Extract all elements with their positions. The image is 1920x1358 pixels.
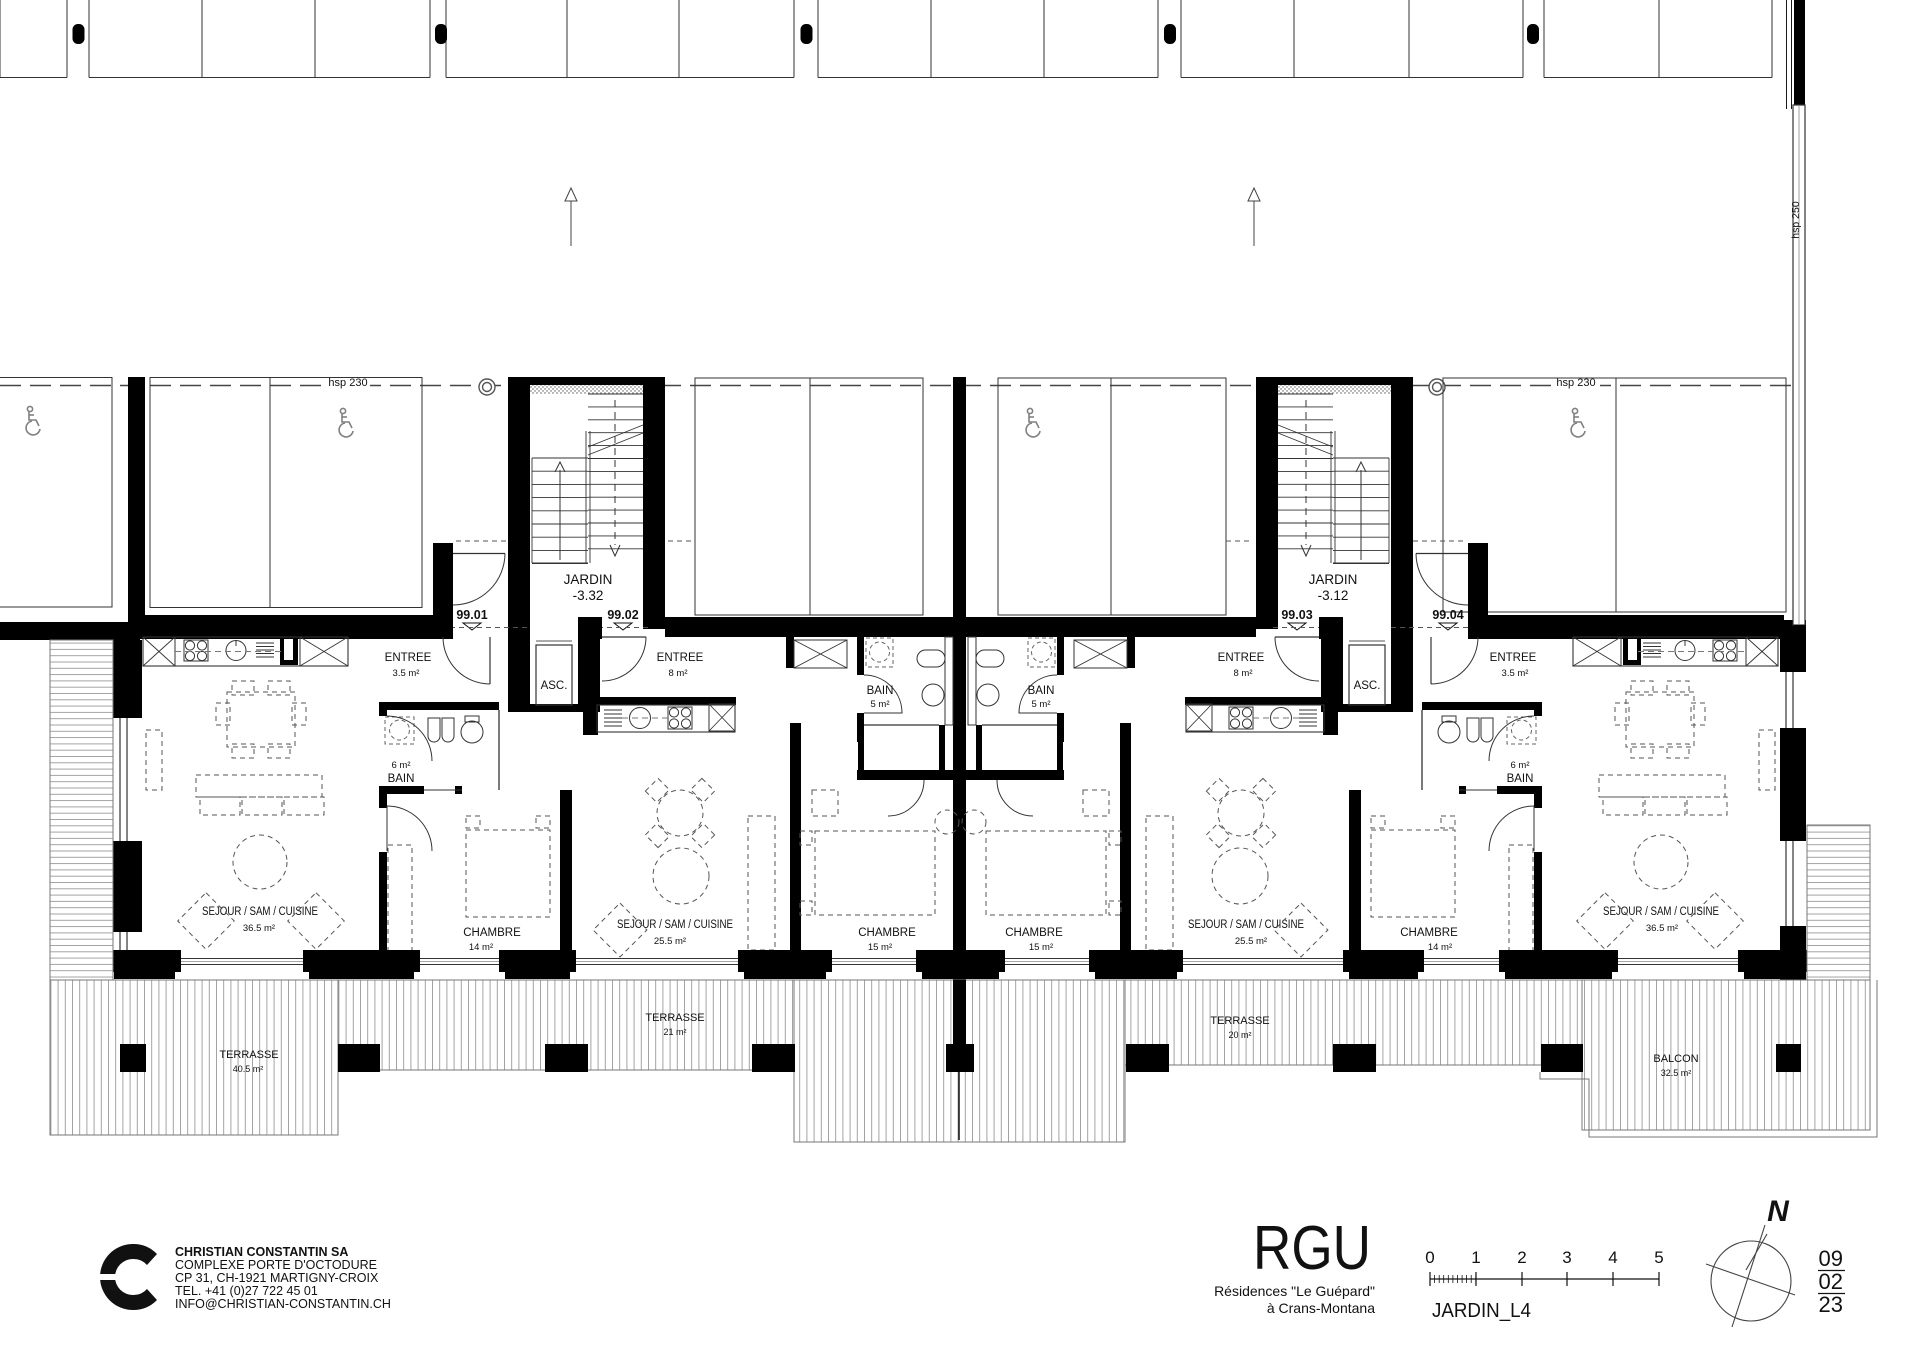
svg-text:JARDIN_L4: JARDIN_L4 <box>1432 1299 1531 1322</box>
svg-text:5 m²: 5 m² <box>1032 699 1051 710</box>
svg-text:15 m²: 15 m² <box>868 942 892 953</box>
svg-text:hsp 250: hsp 250 <box>1790 201 1802 239</box>
svg-text:6 m²: 6 m² <box>1511 760 1530 771</box>
svg-text:BAIN: BAIN <box>388 773 415 785</box>
svg-text:ASC.: ASC. <box>541 680 568 692</box>
svg-text:RGU: RGU <box>1253 1214 1371 1283</box>
svg-text:99.04: 99.04 <box>1432 608 1463 622</box>
svg-text:5 m²: 5 m² <box>871 699 890 710</box>
svg-text:BAIN: BAIN <box>1028 685 1055 697</box>
svg-text:2: 2 <box>1517 1248 1526 1267</box>
svg-text:CHAMBRE: CHAMBRE <box>1005 927 1063 939</box>
svg-text:CHAMBRE: CHAMBRE <box>858 927 916 939</box>
svg-text:23: 23 <box>1819 1292 1843 1317</box>
svg-text:hsp 230: hsp 230 <box>1556 377 1595 389</box>
svg-text:JARDIN: JARDIN <box>564 572 613 587</box>
svg-text:99.02: 99.02 <box>607 608 638 622</box>
svg-text:25.5 m²: 25.5 m² <box>1235 936 1267 947</box>
svg-text:TERRASSE: TERRASSE <box>219 1049 278 1061</box>
svg-text:BAIN: BAIN <box>1507 773 1534 785</box>
svg-text:0: 0 <box>1425 1248 1434 1267</box>
svg-text:ENTREE: ENTREE <box>1490 652 1537 664</box>
svg-text:4: 4 <box>1608 1248 1617 1267</box>
svg-text:ASC.: ASC. <box>1354 680 1381 692</box>
svg-text:36.5 m²: 36.5 m² <box>1646 923 1678 934</box>
svg-text:BALCON: BALCON <box>1653 1053 1698 1065</box>
svg-text:Résidences "Le Guépard": Résidences "Le Guépard" <box>1214 1283 1375 1299</box>
svg-text:ENTREE: ENTREE <box>385 652 432 664</box>
svg-text:15 m²: 15 m² <box>1029 942 1053 953</box>
svg-text:1: 1 <box>1471 1248 1480 1267</box>
svg-text:INFO@CHRISTIAN-CONSTANTIN.CH: INFO@CHRISTIAN-CONSTANTIN.CH <box>175 1297 391 1311</box>
svg-text:36.5 m²: 36.5 m² <box>243 923 275 934</box>
svg-text:BAIN: BAIN <box>867 685 894 697</box>
svg-text:3: 3 <box>1562 1248 1571 1267</box>
svg-text:CHRISTIAN CONSTANTIN SA: CHRISTIAN CONSTANTIN SA <box>175 1245 348 1259</box>
svg-text:JARDIN: JARDIN <box>1309 572 1358 587</box>
svg-text:CHAMBRE: CHAMBRE <box>463 927 521 939</box>
svg-text:14 m²: 14 m² <box>469 942 493 953</box>
svg-text:TEL. +41 (0)27 722 45 01: TEL. +41 (0)27 722 45 01 <box>175 1284 318 1298</box>
svg-text:à Crans-Montana: à Crans-Montana <box>1267 1300 1375 1316</box>
svg-text:SEJOUR / SAM / CUISINE: SEJOUR / SAM / CUISINE <box>1188 919 1304 931</box>
svg-text:40.5 m²: 40.5 m² <box>233 1064 264 1074</box>
svg-text:hsp 230: hsp 230 <box>328 377 367 389</box>
svg-text:3.5 m²: 3.5 m² <box>1502 668 1529 679</box>
svg-text:5: 5 <box>1654 1248 1663 1267</box>
svg-text:COMPLEXE PORTE D'OCTODURE: COMPLEXE PORTE D'OCTODURE <box>175 1258 377 1272</box>
svg-text:02: 02 <box>1819 1269 1843 1294</box>
svg-text:6 m²: 6 m² <box>392 760 411 771</box>
svg-text:99.03: 99.03 <box>1281 608 1312 622</box>
svg-text:CHAMBRE: CHAMBRE <box>1400 927 1458 939</box>
svg-text:8 m²: 8 m² <box>1234 668 1253 679</box>
svg-text:20 m²: 20 m² <box>1228 1030 1251 1040</box>
svg-text:-3.12: -3.12 <box>1318 588 1349 603</box>
svg-text:N: N <box>1767 1195 1790 1228</box>
svg-text:25.5 m²: 25.5 m² <box>654 936 686 947</box>
svg-text:-3.32: -3.32 <box>573 588 604 603</box>
svg-text:32.5 m²: 32.5 m² <box>1661 1068 1692 1078</box>
svg-text:09: 09 <box>1819 1246 1843 1271</box>
svg-text:CP 31, CH-1921 MARTIGNY-CROIX: CP 31, CH-1921 MARTIGNY-CROIX <box>175 1271 379 1285</box>
svg-text:ENTREE: ENTREE <box>1218 652 1265 664</box>
svg-text:ENTREE: ENTREE <box>657 652 704 664</box>
svg-text:TERRASSE: TERRASSE <box>645 1012 704 1024</box>
svg-text:21 m²: 21 m² <box>663 1027 686 1037</box>
svg-text:TERRASSE: TERRASSE <box>1210 1015 1269 1027</box>
svg-text:14 m²: 14 m² <box>1428 942 1452 953</box>
svg-text:SEJOUR / SAM / CUISINE: SEJOUR / SAM / CUISINE <box>617 919 733 931</box>
svg-text:3.5 m²: 3.5 m² <box>393 668 420 679</box>
svg-text:99.01: 99.01 <box>456 608 487 622</box>
svg-text:8 m²: 8 m² <box>669 668 688 679</box>
